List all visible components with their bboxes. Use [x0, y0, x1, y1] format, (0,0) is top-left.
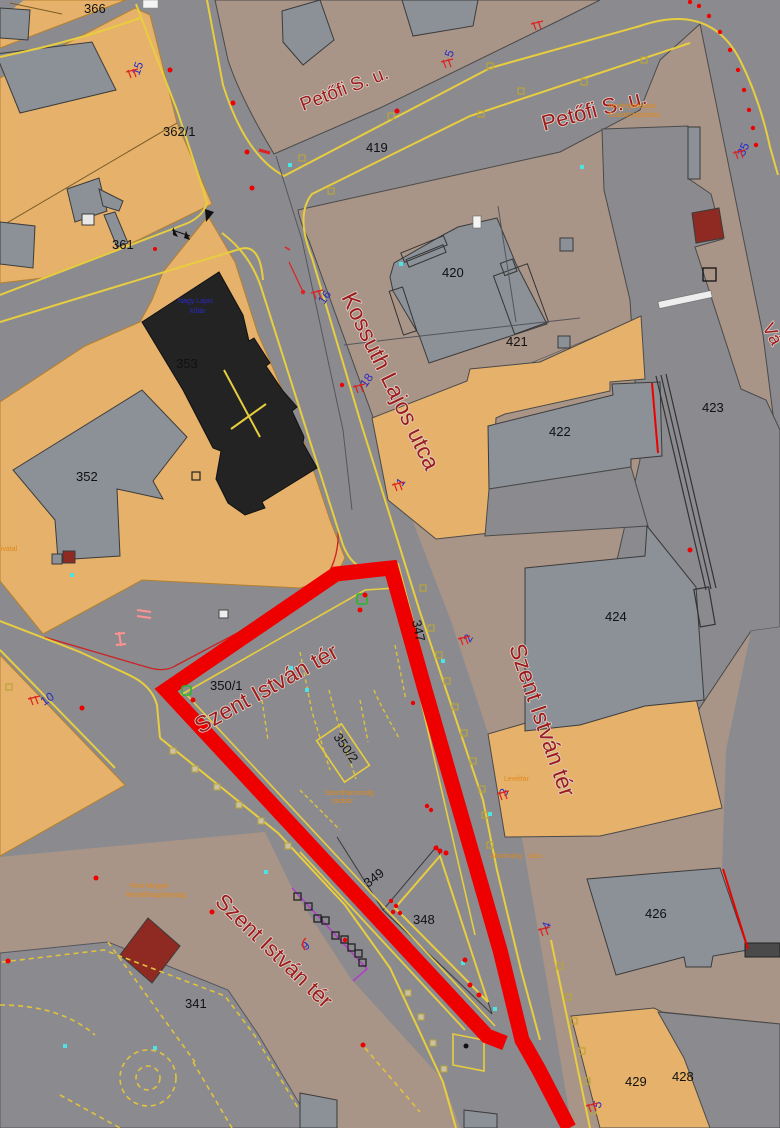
svg-text:353: 353 [176, 356, 198, 371]
svg-text:Szentháromság: Szentháromság [325, 790, 374, 797]
svg-text:348: 348 [413, 912, 435, 927]
svg-text:421: 421 [506, 334, 528, 349]
svg-text:426: 426 [645, 906, 667, 921]
svg-text:Levéltár: Levéltár [504, 776, 530, 783]
svg-text:Alkotmány utca: Alkotmány utca [490, 853, 542, 860]
svg-text:423: 423 [702, 400, 724, 415]
svg-text:Szakközépiskola: Szakközépiskola [608, 112, 660, 119]
svg-text:Nagy Lajos: Nagy Lajos [178, 298, 214, 305]
svg-text:420: 420 [442, 265, 464, 280]
svg-text:424: 424 [605, 609, 627, 624]
svg-text:350/1: 350/1 [210, 678, 243, 693]
svg-text:352: 352 [76, 469, 98, 484]
svg-text:366: 366 [84, 1, 106, 16]
svg-text:szobor: szobor [332, 798, 354, 805]
svg-text:419: 419 [366, 140, 388, 155]
svg-text:429: 429 [625, 1074, 647, 1089]
svg-text:361: 361 [112, 237, 134, 252]
svg-text:428: 428 [672, 1069, 694, 1084]
svg-text:422: 422 [549, 424, 571, 439]
svg-text:341: 341 [185, 996, 207, 1011]
svg-text:Pest Megyei: Pest Megyei [130, 883, 169, 890]
svg-text:Vendéglátóipari: Vendéglátóipari [608, 103, 657, 110]
svg-text:Rendőrkapitányság: Rendőrkapitányság [126, 892, 186, 899]
svg-text:Városi Hivatal: Városi Hivatal [0, 546, 18, 553]
svg-text:362/1: 362/1 [163, 124, 196, 139]
svg-text:kőtár: kőtár [190, 308, 206, 315]
